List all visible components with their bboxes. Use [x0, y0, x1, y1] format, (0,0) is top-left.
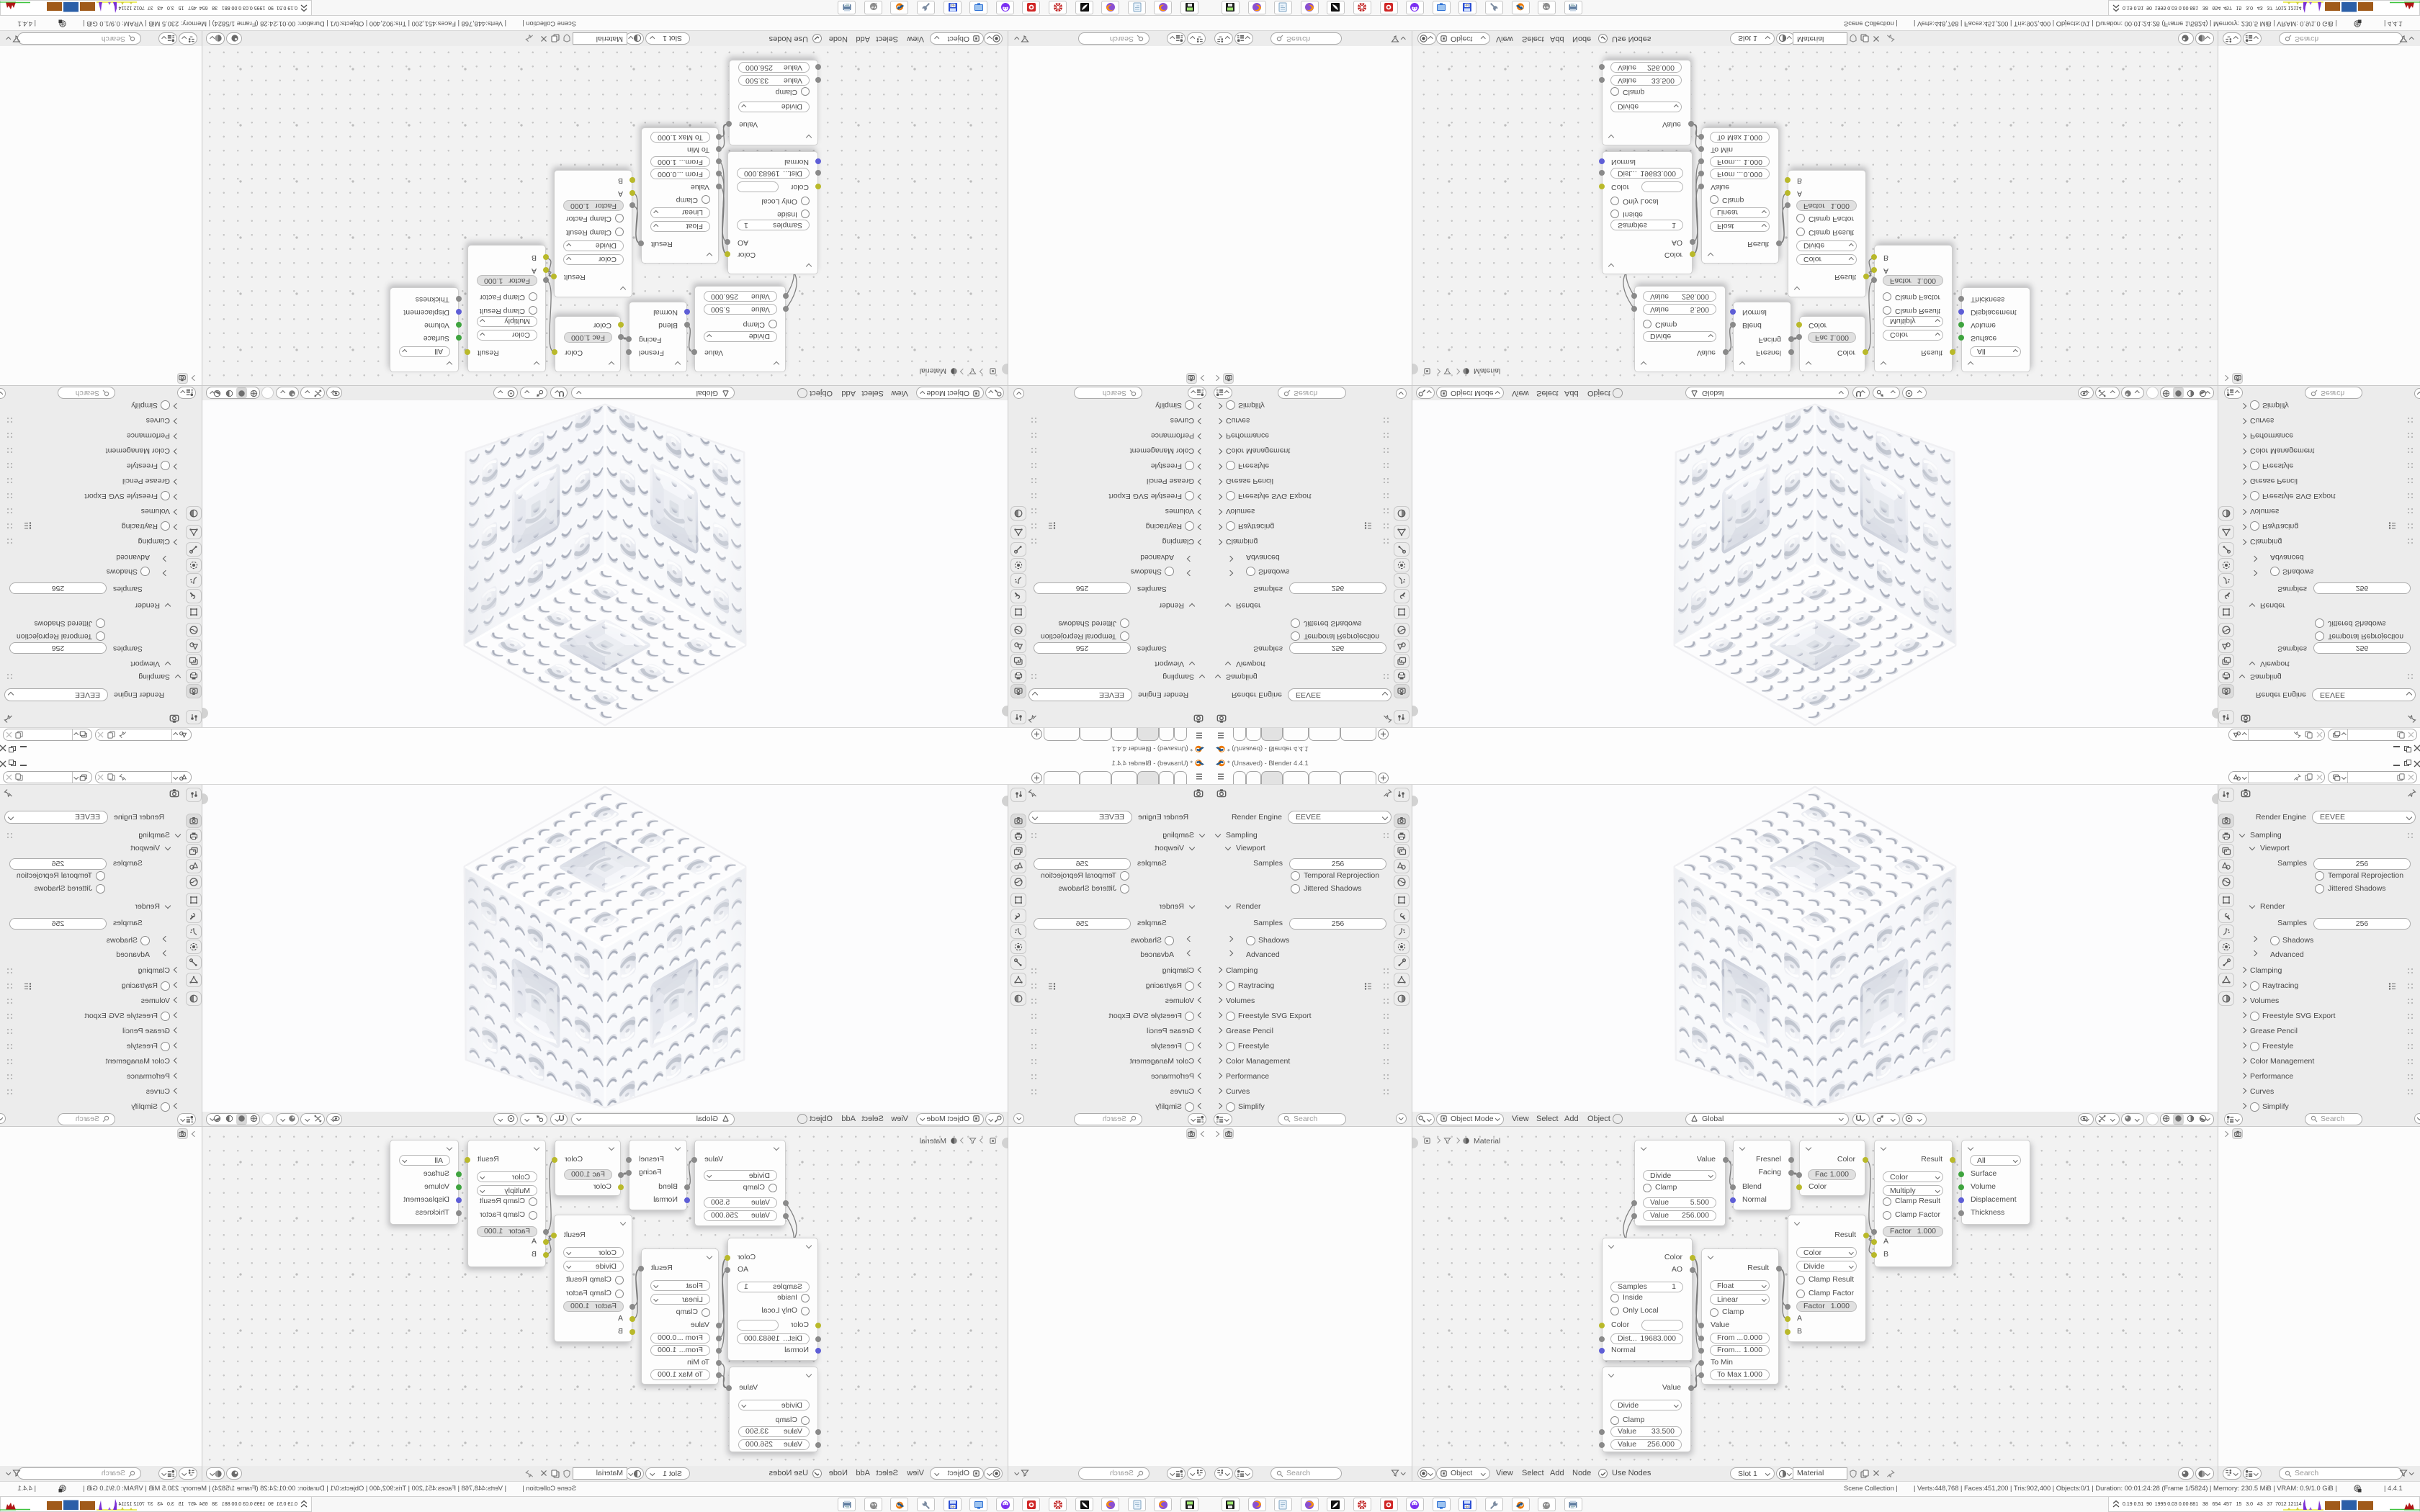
svg-text:64: 64 — [1466, 1505, 1470, 1508]
svg-text:64: 64 — [951, 4, 955, 7]
svg-text:64: 64 — [951, 1505, 955, 1508]
svg-text:64: 64 — [1466, 4, 1470, 7]
